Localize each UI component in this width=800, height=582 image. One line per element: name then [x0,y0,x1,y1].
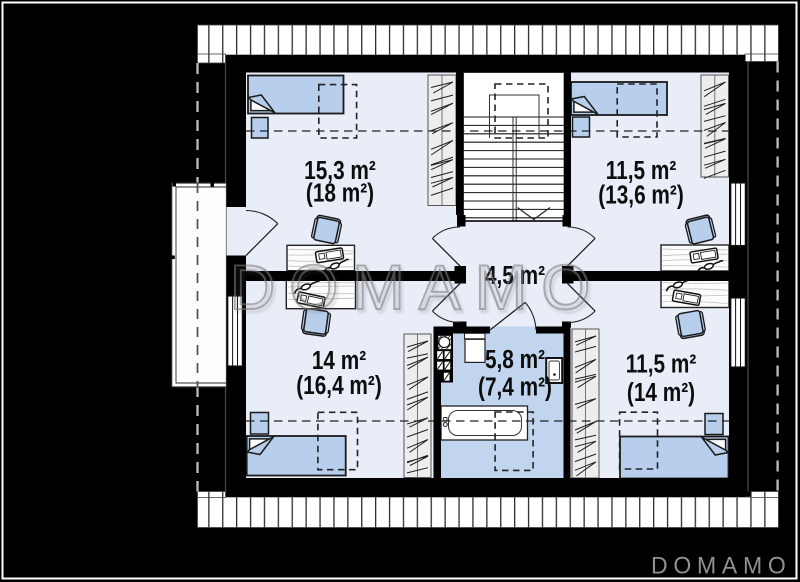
svg-text:DOMAMO: DOMAMO [230,253,604,323]
svg-text:11,5 m²: 11,5 m² [626,349,697,378]
svg-text:(14 m²): (14 m²) [627,378,695,407]
svg-text:(13,6 m²): (13,6 m²) [598,180,684,209]
svg-text:(16,4 m²): (16,4 m²) [296,371,382,400]
svg-text:5,8 m²: 5,8 m² [485,345,545,374]
svg-text:(7,4 m²): (7,4 m²) [478,373,552,402]
svg-text:DOMAMO: DOMAMO [651,552,792,580]
svg-text:(18 m²): (18 m²) [306,178,374,207]
